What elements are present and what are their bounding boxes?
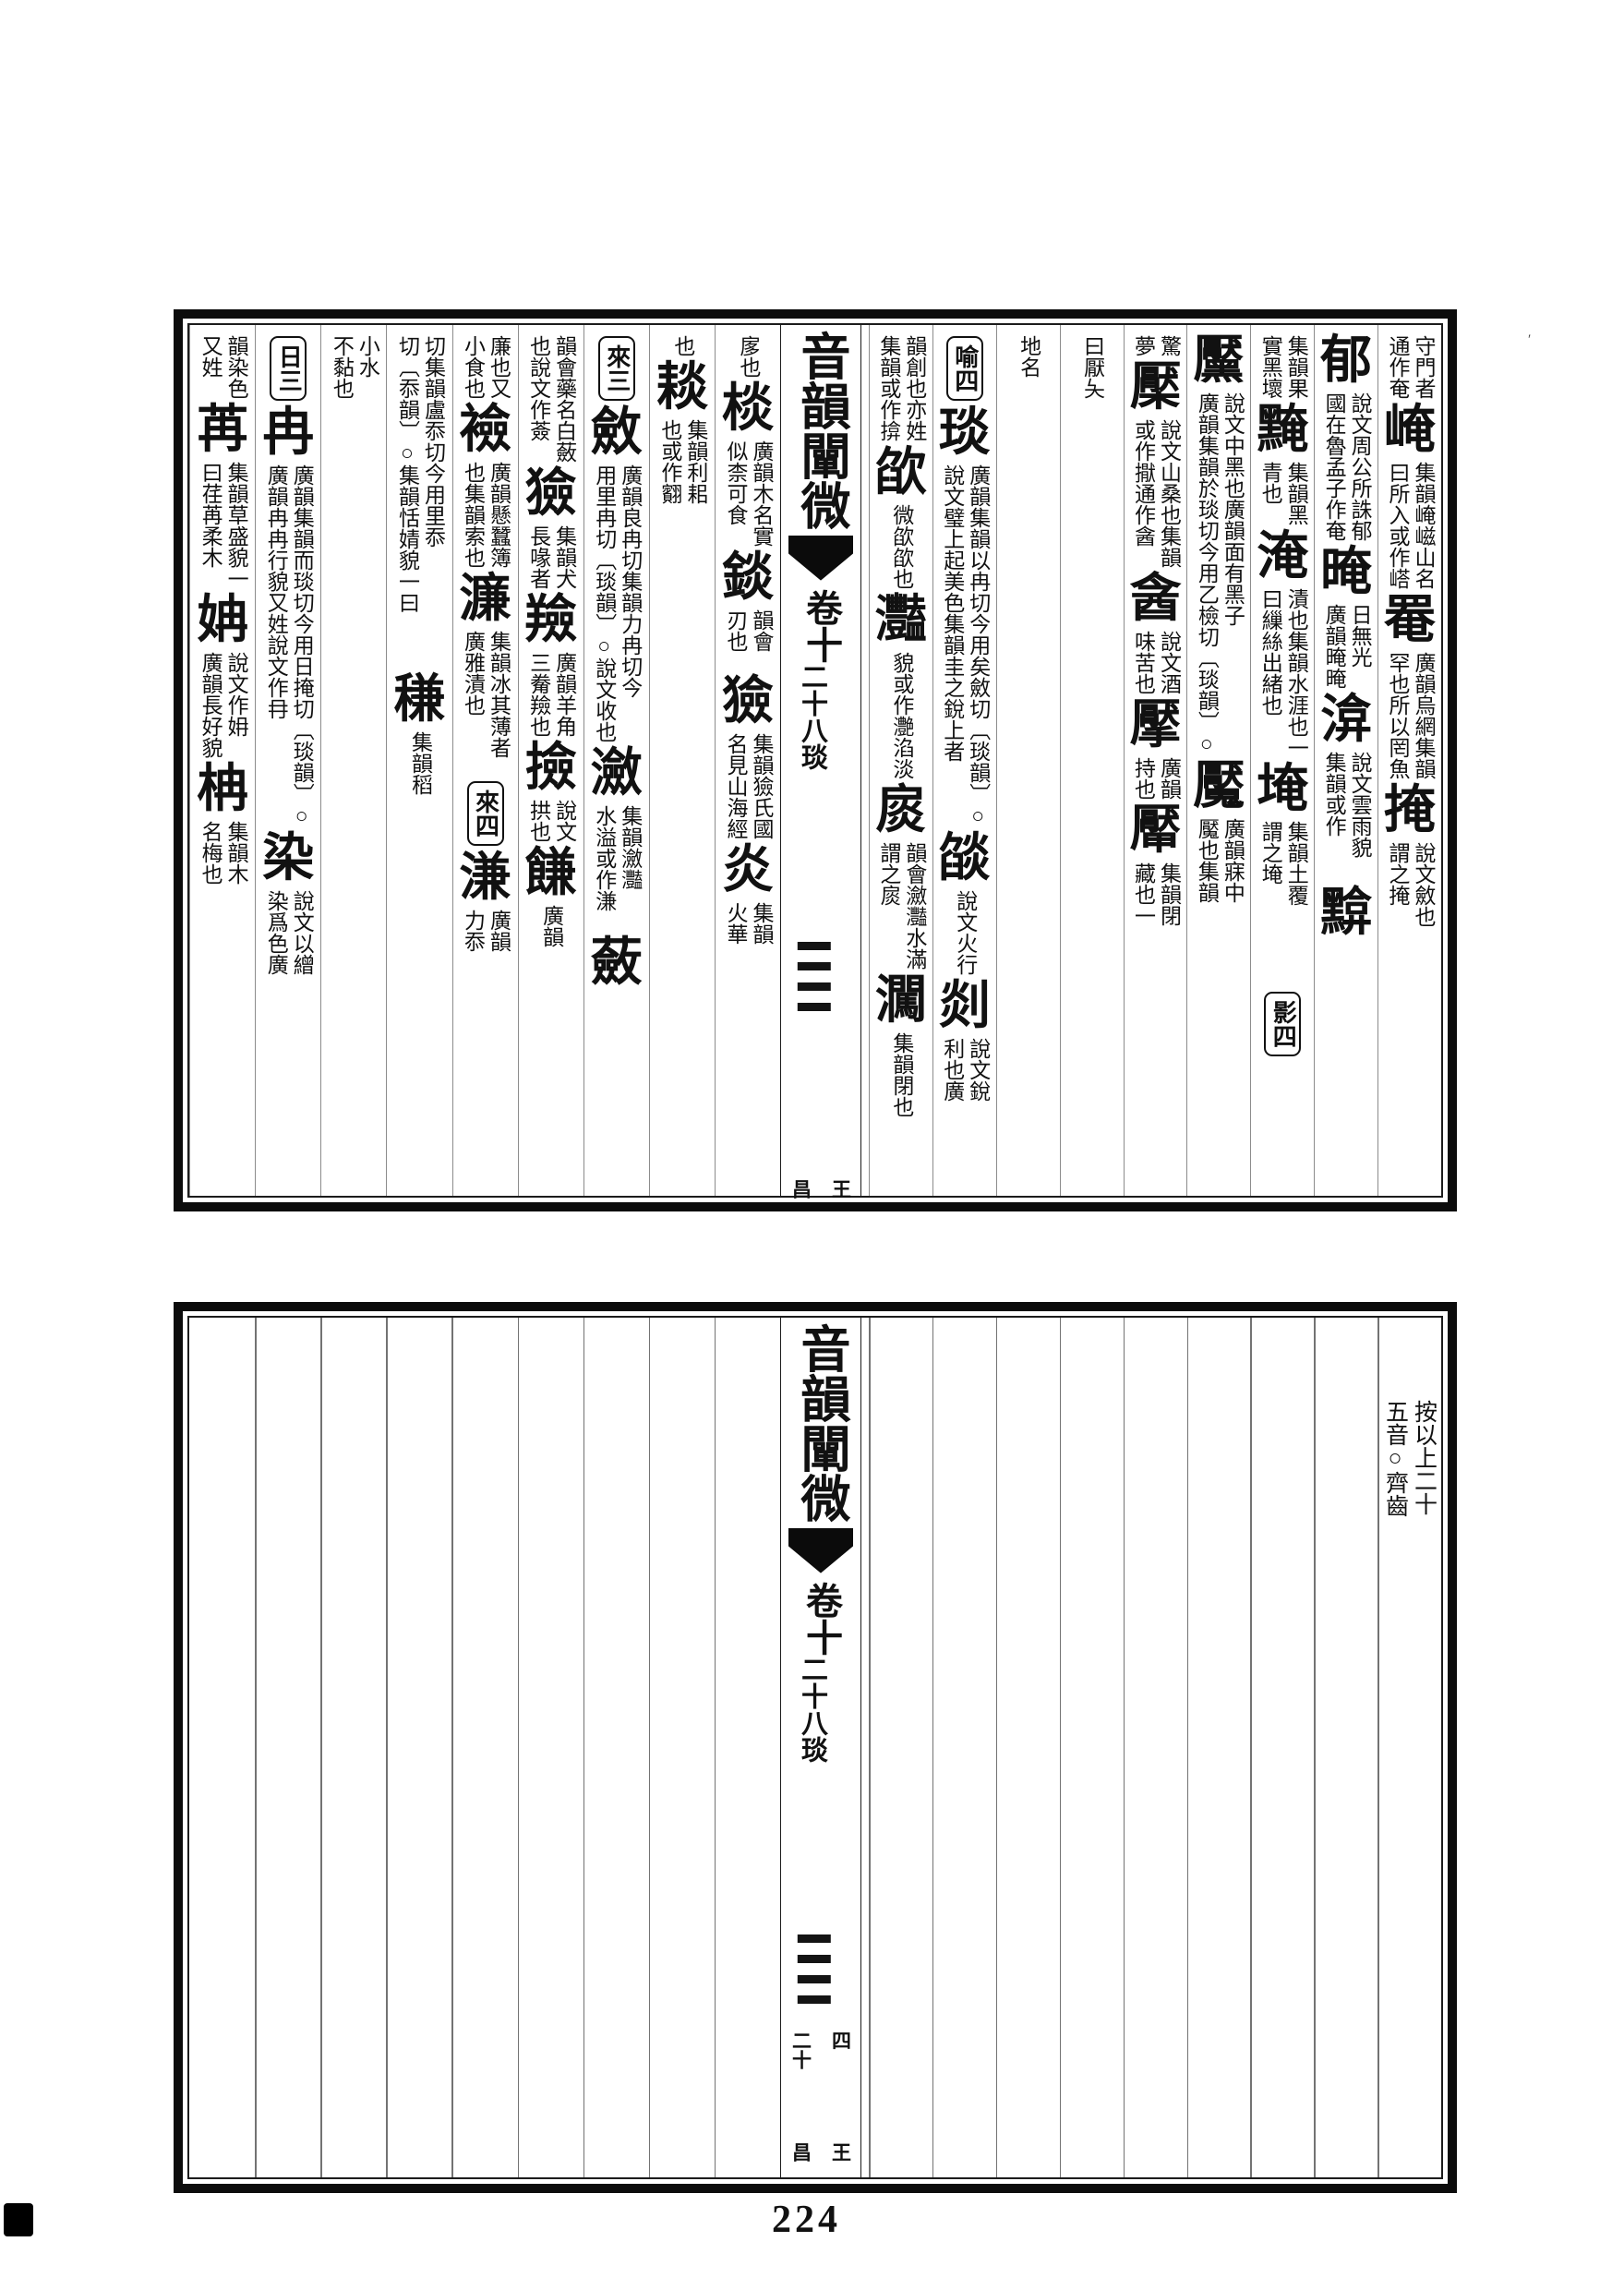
note-line-left: 五音○齊齒: [1381, 1400, 1410, 2175]
gloss-line-right: 廣韻懸蠶簿: [486, 462, 511, 568]
gloss-line-left: 又姓: [197, 335, 223, 399]
gloss-text: 集韻瀲灩水溢或作溓: [591, 805, 643, 911]
gloss-line-left: 通作奄: [1384, 335, 1410, 399]
column-rule: [386, 1318, 388, 2177]
headword-char: 蘞: [591, 934, 643, 992]
gloss-line-right: 扅也: [735, 335, 761, 378]
gloss-line-left: 味苦也: [1129, 631, 1155, 694]
headword-char: 瀲: [591, 745, 643, 802]
gloss-line-left: 國在魯孟子作奄: [1320, 392, 1346, 541]
gloss-line-left: 刃也: [722, 609, 748, 652]
gloss-text: 廣韻良冉切集韻力冉切今用里冉切〔琰韻〕○說文收也: [591, 464, 643, 742]
gloss-line-right: 集韻黑: [1282, 462, 1308, 525]
headword-char: 魘: [1193, 758, 1245, 815]
gloss-line-right: 說文周公所誅郁: [1346, 392, 1372, 541]
headword-char: 柟: [197, 761, 248, 818]
gloss-line-right: 切集韻盧忝切今用里忝: [419, 335, 445, 613]
book-title: 音韻闡微: [790, 1323, 851, 1523]
gloss-line-left: 實黑壞: [1257, 335, 1282, 399]
volume-label: 卷十: [800, 1582, 842, 1656]
gloss-line-left: 長喙者: [525, 525, 551, 589]
headword-char: 獫: [722, 673, 774, 730]
dictionary-column: 驚夢檿說文山桑也集韻或作㩎通作酓酓說文酒味苦也擪廣韻持也厴集韻閉藏也一: [1124, 325, 1187, 1196]
gloss-line-right: 集韻崦嵫山名: [1410, 462, 1436, 589]
gloss-line-left: 魘也集韻: [1193, 818, 1219, 903]
headword-char: 黤: [1257, 402, 1308, 459]
gloss-line-right: 曰厭夨: [1079, 335, 1105, 399]
dictionary-column: 韻創也亦姓集韻或作揜欿微欿欿也灩貌或作灔淊淡扊韻會瀲灩水滿謂之扊㶒集韻閉也: [869, 325, 932, 1196]
dictionary-column: 地名: [996, 325, 1060, 1196]
gloss-line-left: 夢: [1129, 335, 1155, 356]
gloss-line-right: 集韻瀲灩: [617, 805, 643, 911]
gloss-line-left: 也或作䎙: [656, 419, 682, 504]
column-rule: [649, 1318, 651, 2177]
gloss-line-left: 謂之扊: [875, 842, 901, 970]
gloss-text: 小水不黏也: [328, 335, 379, 399]
gloss-line-right: 漬也集韻水涯也一: [1282, 588, 1308, 758]
top-block-inner-border: 守門者通作奄崦集韻崦嵫山名曰所入或作㟷罨廣韻烏網集韻罕也所以罔魚掩說文斂也謂之掩…: [187, 323, 1443, 1198]
gloss-line-right: 集韻冰其薄者: [486, 631, 511, 758]
gloss-text: 韻會瀲灩水滿謂之扊: [875, 842, 927, 970]
gloss-line-right: 韻創也亦姓: [901, 335, 927, 441]
gloss-line-right: 集韻獫氏國: [748, 733, 774, 839]
gloss-line-right: 集韻土覆: [1282, 821, 1308, 906]
gloss-text: 說文火行: [952, 890, 978, 975]
headword-char: 渰: [1320, 692, 1372, 749]
gloss-line-left: 用里冉切〔琰韻〕○說文收也: [591, 464, 617, 742]
gloss-text: 集韻閉藏也一: [1129, 862, 1181, 926]
gloss-text: 說文銳利也廣: [939, 1038, 991, 1102]
headword-char: 炎: [722, 842, 774, 899]
gloss-line-left: 曰繅絲出緒也: [1257, 588, 1282, 758]
section-marker: 來四: [467, 781, 504, 846]
gloss-line-left: 集韻或作揜: [875, 335, 901, 441]
gloss-text: 集韻利耜也或作䎙: [656, 419, 708, 504]
dictionary-column: 曰厭夨: [1060, 325, 1124, 1196]
scan-speck: ʹ: [1528, 332, 1531, 348]
gloss-line-left: 名梅也: [197, 821, 223, 885]
column-rule: [451, 1318, 453, 2177]
gloss-line-right: 微欿欿也: [888, 504, 914, 589]
gloss-text: 廣韻力忝: [460, 910, 511, 952]
gloss-text: 微欿欿也: [888, 504, 914, 589]
gloss-line-left: 謂之掩: [1384, 842, 1410, 927]
gloss-text: 說文以繒染爲色廣: [262, 890, 314, 975]
gloss-line-left: 持也: [1129, 757, 1155, 800]
rhyme-label: 二十八琰: [797, 1656, 827, 1763]
headword-char: 斂: [591, 404, 643, 462]
gloss-text: 廣韻烏網集韻罕也所以罔魚: [1384, 652, 1436, 779]
headword-char: 厴: [1129, 802, 1181, 860]
column-rule: [1060, 1318, 1062, 2177]
gloss-text: 韻會藥名白蘞也說文作薟: [525, 335, 577, 463]
gloss-line-right: 廣韻: [486, 910, 511, 952]
gloss-text: 韻會刃也: [722, 609, 774, 652]
gloss-line-right: 守門者: [1410, 335, 1436, 399]
gloss-line-right: 說文山桑也集韻: [1155, 419, 1181, 568]
gloss-line-right: 廣韻烏網集韻: [1410, 652, 1436, 779]
gloss-line-right: 驚: [1155, 335, 1181, 356]
folio-tally-mark: [798, 942, 831, 1021]
gloss-line-right: 說文銳: [965, 1038, 991, 1102]
editor-note-column: 按以上二十 五音○齊齒: [1377, 1318, 1441, 2177]
gloss-text: 說文拱也: [525, 800, 577, 842]
headword-char: 崦: [1384, 402, 1436, 459]
gloss-line-right: 廣韻木名實: [748, 440, 774, 547]
headword-char: 掩: [1384, 782, 1436, 839]
headword-char: 襝: [460, 402, 511, 459]
gloss-line-left: 或作㩎通作酓: [1129, 419, 1155, 568]
center-fold-column-bottom: 音韻闡微 卷十 二十八琰 二十 四 昌 王: [780, 1318, 861, 2177]
gloss-text: 廣韻羊角三觠羷也: [525, 652, 577, 737]
gloss-line-right: 集韻犬: [551, 525, 577, 589]
center-fold-column: 音韻闡微 卷十 二十八琰 昌 王: [780, 325, 861, 1196]
gloss-line-right: 廣韻羊角: [551, 652, 577, 737]
dictionary-column: 切集韻盧忝切今用里忝切〔忝韻〕○集韻恬婧貌一曰稴集韻稻: [386, 325, 451, 1196]
gloss-line-right: 日無光: [1346, 604, 1372, 689]
gloss-text: 說文作㚩廣韻長好貌: [197, 652, 248, 758]
gloss-line-left: 小食也: [460, 335, 486, 399]
gloss-text: 集韻果實黑壞: [1257, 335, 1308, 399]
dictionary-column: 扅也棪廣韻木名實似柰可食錟韻會刃也獫集韻獫氏國名見山海經炎集韻火華: [715, 325, 780, 1196]
headword-char: 酓: [1129, 571, 1181, 628]
gloss-text: 廣韻持也: [1129, 757, 1181, 800]
gloss-text: 說文斂也謂之掩: [1384, 842, 1436, 927]
carver-marks: 昌 王: [781, 1179, 860, 1199]
gloss-line-right: 也: [669, 335, 695, 356]
carver-marks-lower: 昌 王: [781, 2142, 860, 2162]
gloss-line-right: 集韻: [748, 902, 774, 945]
gloss-text: 扅也: [735, 335, 761, 378]
gloss-line-right: 廣韻良冉切集韻力冉切今: [617, 464, 643, 742]
headword-char: 罨: [1384, 592, 1436, 649]
gloss-text: 廣韻: [538, 905, 564, 947]
column-rule: [1124, 1318, 1125, 2177]
gloss-text: 集韻土覆謂之埯: [1257, 821, 1308, 906]
dictionary-column: 韻染色又姓苒集韻草盛貌一曰荏苒柔木姌說文作㚩廣韻長好貌柟集韻木名梅也: [189, 325, 255, 1196]
gloss-line-right: 說文雲雨貌: [1346, 752, 1372, 858]
gloss-text: 集韻火華: [722, 902, 774, 945]
gloss-line-right: 說文作㚩: [223, 652, 248, 758]
carver-mark-right: 四: [831, 2031, 851, 2069]
carver-mark-left: 昌: [791, 2142, 812, 2162]
gloss-text: 守門者通作奄: [1384, 335, 1436, 399]
gloss-text: 說文周公所誅郁國在魯孟子作奄: [1320, 392, 1372, 541]
gloss-text: 集韻稻: [406, 731, 432, 795]
gloss-line-left: 名見山海經: [722, 733, 748, 839]
headword-char: 撿: [525, 740, 577, 797]
carver-mark-left: 二十: [791, 2031, 812, 2069]
headword-char: 冉: [262, 404, 314, 462]
headword-char: 稴: [393, 671, 445, 729]
dictionary-column: 郁說文周公所誅郁國在魯孟子作奄晻日無光廣韻晻晻渰說文雲雨貌集韻或作𩃗黭: [1314, 325, 1377, 1196]
headword-char: 扊: [875, 782, 927, 839]
gloss-line-right: 集韻果: [1282, 335, 1308, 399]
gloss-text: 集韻閉也: [888, 1032, 914, 1117]
gloss-line-left: 似柰可食: [722, 440, 748, 547]
gloss-text: 說文雲雨貌集韻或作𩃗: [1320, 752, 1372, 858]
left-half-page: 扅也棪廣韻木名實似柰可食錟韻會刃也獫集韻獫氏國名見山海經炎集韻火華也䎦集韻利耜也…: [189, 325, 780, 1196]
gloss-line-right: 說文: [551, 800, 577, 842]
gloss-line-left: 藏也一: [1129, 862, 1155, 926]
column-rule: [320, 1318, 322, 2177]
column-rule: [869, 1318, 871, 2177]
gloss-text: 廣韻寐中魘也集韻: [1193, 818, 1245, 903]
headword-char: 濂: [460, 571, 511, 628]
column-rule: [715, 1318, 716, 2177]
gloss-line-right: 說文火行: [952, 890, 978, 975]
dictionary-column: 韻會藥名白蘞也說文作薟獫集韻犬長喙者羷廣韻羊角三觠羷也撿說文拱也䭑廣韻: [518, 325, 583, 1196]
column-rule: [583, 1318, 585, 2177]
headword-char: 䎦: [656, 359, 708, 416]
column-rule: [1250, 1318, 1252, 2177]
gloss-line-left: 也集韻索也: [460, 462, 486, 568]
gloss-text: 集韻獫氏國名見山海經: [722, 733, 774, 839]
headword-char: 剡: [939, 978, 991, 1035]
gloss-text: 說文山桑也集韻或作㩎通作酓: [1129, 419, 1181, 568]
gloss-line-right: 說文斂也: [1410, 842, 1436, 927]
gloss-line-right: 韻會藥名白蘞: [551, 335, 577, 463]
section-marker: 喻四: [946, 336, 983, 401]
gloss-line-right: 集韻利耜: [682, 419, 708, 504]
gloss-line-right: 地名: [1016, 335, 1041, 378]
gloss-line-left: 水溢或作溓: [591, 805, 617, 911]
bottom-block-inner-border: 按以上二十 五音○齊齒 音韻闡微 卷十 二十八琰 二十 四 昌 王: [187, 1316, 1443, 2179]
carver-mark-right: 王: [831, 2142, 851, 2162]
gloss-text: 廣韻懸蠶簿也集韻索也: [460, 462, 511, 568]
gloss-text: 集韻冰其薄者廣雅漬也: [460, 631, 511, 758]
headword-char: 䭑: [525, 845, 577, 902]
dictionary-column: 也䎦集韻利耜也或作䎙: [649, 325, 715, 1196]
gloss-line-right: 韻會瀲灩水滿: [901, 842, 927, 970]
gloss-line-right: 韻會: [748, 609, 774, 652]
headword-char: 晻: [1320, 544, 1372, 601]
gloss-line-left: 利也廣: [939, 1038, 965, 1102]
headword-char: 灩: [875, 592, 927, 649]
gloss-line-right: 集韻閉也: [888, 1032, 914, 1117]
section-marker: 來三: [598, 336, 635, 401]
gloss-text: 廉也又小食也: [460, 335, 511, 399]
gloss-text: 驚夢: [1129, 335, 1181, 356]
headword-char: 燄: [939, 830, 991, 887]
gloss-line-right: 集韻稻: [406, 731, 432, 795]
headword-char: 檿: [1129, 359, 1181, 416]
gloss-text: 漬也集韻水涯也一曰繅絲出緒也: [1257, 588, 1308, 758]
dictionary-column: 小水不黏也: [320, 325, 386, 1196]
headword-char: 琰: [939, 404, 991, 462]
gloss-text: 集韻崦嵫山名曰所入或作㟷: [1384, 462, 1436, 589]
headword-char: 染: [262, 830, 314, 887]
gloss-line-left: 說文璧上起美色集韻圭之銳上者: [939, 464, 965, 827]
headword-char: 黶: [1193, 332, 1245, 390]
column-rule: [518, 1318, 520, 2177]
gloss-line-right: 廣韻集韻以冉切今用矣斂切〔琰韻〕○: [965, 464, 991, 827]
gloss-line-left: 切〔忝韻〕○集韻恬婧貌一曰: [393, 335, 419, 613]
headword-char: 溓: [460, 850, 511, 907]
gloss-line-left: 廣韻冉冉行貌又姓說文作冄: [262, 464, 288, 827]
gloss-line-left: 謂之埯: [1257, 821, 1282, 906]
gloss-line-right: 集韻草盛貌一: [223, 462, 248, 589]
gloss-line-right: 集韻閉: [1155, 862, 1181, 926]
dictionary-column: 守門者通作奄崦集韻崦嵫山名曰所入或作㟷罨廣韻烏網集韻罕也所以罔魚掩說文斂也謂之掩: [1377, 325, 1441, 1196]
gloss-text: 集韻犬長喙者: [525, 525, 577, 589]
column-rule: [1187, 1318, 1189, 2177]
gloss-text: 日無光廣韻晻晻: [1320, 604, 1372, 689]
volume-label: 卷十: [800, 589, 842, 663]
gloss-line-right: 廣韻寐中: [1219, 818, 1245, 903]
gloss-text: 曰厭夨: [1079, 335, 1105, 399]
carver-marks-upper: 二十 四: [781, 2031, 860, 2069]
bottom-ruled-block: 按以上二十 五音○齊齒 音韻闡微 卷十 二十八琰 二十 四 昌 王: [174, 1302, 1457, 2193]
editor-note: 按以上二十 五音○齊齒: [1381, 1400, 1438, 2175]
headword-char: 苒: [197, 402, 248, 459]
section-marker: 影四: [1264, 992, 1301, 1056]
gloss-line-left: 廣雅漬也: [460, 631, 486, 758]
dictionary-column: 黶說文中黑也廣韻面有黑子廣韻集韻於琰切今用乙檢切〔琰韻〕○魘廣韻寐中魘也集韻: [1186, 325, 1250, 1196]
headword-char: 擪: [1129, 697, 1181, 754]
gloss-line-right: 說文中黑也廣韻面有黑子: [1219, 392, 1245, 755]
carver-mark-left: 昌: [791, 1179, 812, 1199]
headword-char: 黭: [1320, 885, 1372, 942]
gloss-line-left: 不黏也: [328, 335, 354, 399]
folio-tally-mark: [798, 1934, 831, 2014]
headword-char: 錟: [722, 549, 774, 607]
gloss-text: 集韻草盛貌一曰荏苒柔木: [197, 462, 248, 589]
gloss-text: 集韻木名梅也: [197, 821, 248, 885]
gloss-line-left: 廣韻長好貌: [197, 652, 223, 758]
gloss-line-right: 小水: [354, 335, 379, 399]
gloss-line-left: 罕也所以罔魚: [1384, 652, 1410, 779]
gloss-text: 集韻黑青也: [1257, 462, 1308, 525]
gloss-line-right: 廣韻集韻而琰切今用日掩切〔琰韻〕○: [288, 464, 314, 827]
gloss-line-right: 說文以繒: [288, 890, 314, 975]
gloss-text: 說文酒味苦也: [1129, 631, 1181, 694]
gloss-line-left: 染爲色廣: [262, 890, 288, 975]
gloss-line-right: 集韻木: [223, 821, 248, 885]
headword-char: 淹: [1257, 528, 1308, 585]
gloss-text: 廣韻木名實似柰可食: [722, 440, 774, 547]
gloss-text: 說文中黑也廣韻面有黑子廣韻集韻於琰切今用乙檢切〔琰韻〕○: [1193, 392, 1245, 755]
gloss-line-left: 力忝: [460, 910, 486, 952]
gloss-line-left: 集韻或作𩃗: [1320, 752, 1346, 858]
gloss-line-left: 廣韻集韻於琰切今用乙檢切〔琰韻〕○: [1193, 392, 1219, 755]
column-rule: [1314, 1318, 1316, 2177]
headword-char: 羷: [525, 592, 577, 649]
page-number: 224: [772, 2198, 841, 2242]
gloss-line-right: 廣韻: [1155, 757, 1181, 800]
gloss-text: 地名: [1016, 335, 1041, 378]
gloss-line-left: 曰所入或作㟷: [1384, 462, 1410, 589]
column-rule: [255, 1318, 257, 2177]
carver-mark-right: 王: [831, 1179, 851, 1199]
fishtail-ornament: [788, 536, 853, 585]
book-title: 音韻闡微: [790, 331, 851, 530]
headword-char: 欿: [875, 444, 927, 501]
gloss-line-right: 貌或作灔淊淡: [888, 652, 914, 779]
gloss-text: 韻染色又姓: [197, 335, 248, 399]
gloss-text: 切集韻盧忝切今用里忝切〔忝韻〕○集韻恬婧貌一曰: [393, 335, 445, 613]
rhyme-label: 二十八琰: [797, 663, 827, 770]
gloss-line-right: 說文酒: [1155, 631, 1181, 694]
dictionary-column: 日三冉廣韻集韻而琰切今用日掩切〔琰韻〕○廣韻冉冉行貌又姓說文作冄染說文以繒染爲色…: [255, 325, 320, 1196]
dictionary-column: 喻四琰廣韻集韻以冉切今用矣斂切〔琰韻〕○說文璧上起美色集韻圭之銳上者燄說文火行剡…: [932, 325, 996, 1196]
gloss-line-left: 三觠羷也: [525, 652, 551, 737]
section-marker: 日三: [270, 336, 307, 401]
column-rule: [996, 1318, 998, 2177]
gloss-line-right: 韻染色: [223, 335, 248, 399]
dictionary-column: 來三斂廣韻良冉切集韻力冉切今用里冉切〔琰韻〕○說文收也瀲集韻瀲灩水溢或作溓蘞: [583, 325, 649, 1196]
right-half-page: 守門者通作奄崦集韻崦嵫山名曰所入或作㟷罨廣韻烏網集韻罕也所以罔魚掩說文斂也謂之掩…: [869, 325, 1441, 1196]
headword-char: 埯: [1257, 761, 1308, 818]
gloss-line-left: 廣韻晻晻: [1320, 604, 1346, 689]
gloss-text: 也: [669, 335, 695, 356]
headword-char: 㶒: [875, 972, 927, 1030]
gloss-line-right: 廉也又: [486, 335, 511, 399]
headword-char: 棪: [722, 380, 774, 438]
gloss-line-left: 青也: [1257, 462, 1282, 525]
dictionary-column: 集韻果實黑壞黤集韻黑青也淹漬也集韻水涯也一曰繅絲出緒也埯集韻土覆謂之埯影四: [1250, 325, 1314, 1196]
gloss-text: 貌或作灔淊淡: [888, 652, 914, 779]
gloss-line-left: 拱也: [525, 800, 551, 842]
top-text-block: 守門者通作奄崦集韻崦嵫山名曰所入或作㟷罨廣韻烏網集韻罕也所以罔魚掩說文斂也謂之掩…: [174, 309, 1457, 1211]
gloss-text: 韻創也亦姓集韻或作揜: [875, 335, 927, 441]
gloss-line-left: 曰荏苒柔木: [197, 462, 223, 589]
gloss-line-left: 火華: [722, 902, 748, 945]
gloss-line-left: 也說文作薟: [525, 335, 551, 463]
headword-char: 獫: [525, 465, 577, 523]
gloss-text: 廣韻集韻而琰切今用日掩切〔琰韻〕○廣韻冉冉行貌又姓說文作冄: [262, 464, 314, 827]
note-line-right: 按以上二十: [1410, 1400, 1438, 2175]
gloss-text: 廣韻集韻以冉切今用矣斂切〔琰韻〕○說文璧上起美色集韻圭之銳上者: [939, 464, 991, 827]
scan-ink-blot: [4, 2203, 33, 2236]
column-rule: [932, 1318, 934, 2177]
headword-char: 郁: [1320, 332, 1372, 390]
gloss-line-right: 廣韻: [538, 905, 564, 947]
headword-char: 姌: [197, 592, 248, 649]
fishtail-ornament: [788, 1528, 853, 1578]
dictionary-column: 廉也又小食也襝廣韻懸蠶簿也集韻索也濂集韻冰其薄者廣雅漬也來四溓廣韻力忝: [452, 325, 518, 1196]
